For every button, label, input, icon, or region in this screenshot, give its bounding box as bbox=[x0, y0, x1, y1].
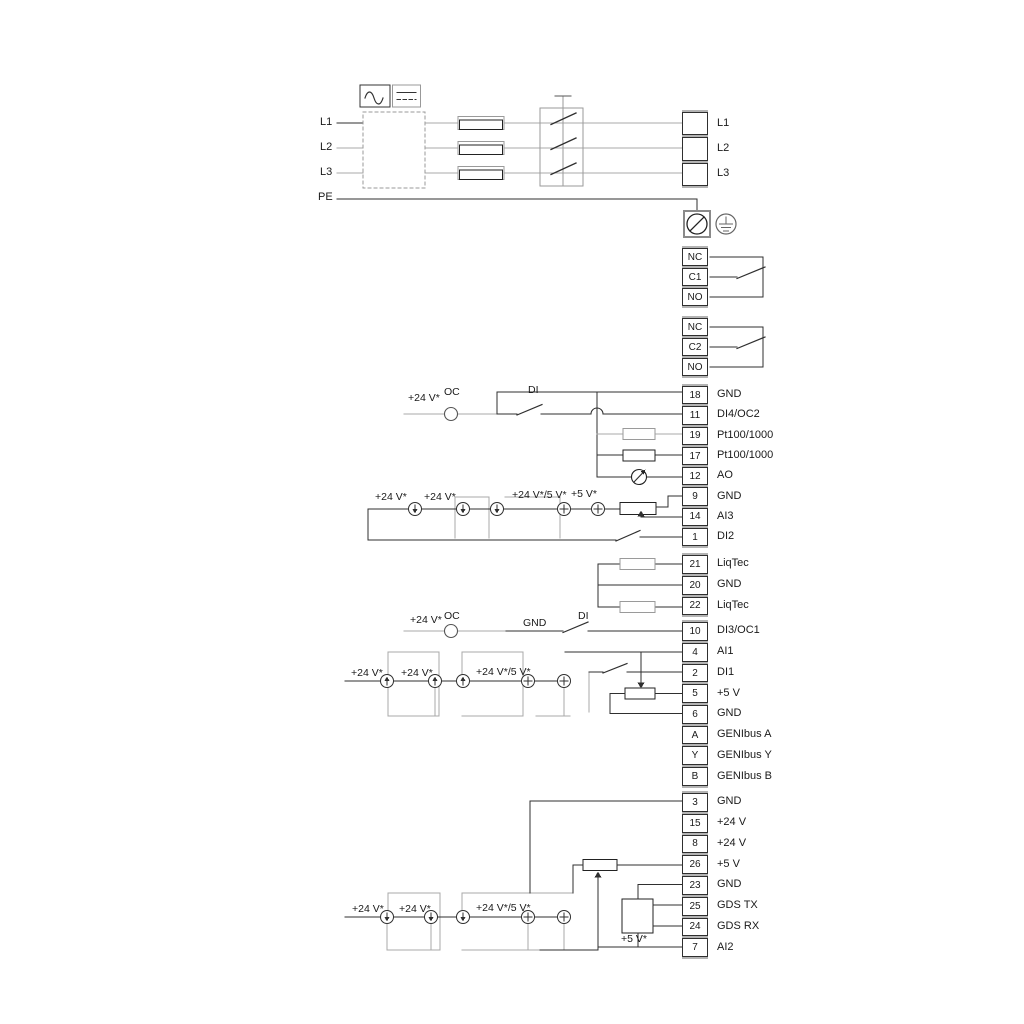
terminal-label-+5 V: +5 V bbox=[717, 687, 740, 699]
terminal-label-DI3/OC1: DI3/OC1 bbox=[717, 624, 760, 636]
terminal-label-DI1: DI1 bbox=[717, 666, 734, 678]
terminal-cell-22: 22 bbox=[682, 597, 708, 616]
earth-ground-icon bbox=[716, 214, 736, 234]
terminal-cell-C2: C2 bbox=[682, 338, 708, 356]
pe-terminal-icon bbox=[684, 211, 710, 237]
terminal-group-relay2: NCC2NO bbox=[682, 316, 708, 378]
terminal-cell-26: 26 bbox=[682, 855, 708, 874]
ac-symbol-icon bbox=[360, 85, 390, 107]
wiring-diagram: L1 L2 L3 PE +24 V* OC DI +24 V* +24 V* +… bbox=[0, 0, 1024, 1024]
mains-input-section bbox=[337, 85, 736, 237]
liqtec-sensor-icon bbox=[620, 559, 655, 570]
relay1-contact bbox=[710, 257, 765, 297]
terminal-cell-2: 2 bbox=[682, 664, 708, 683]
terminal-cell-15: 15 bbox=[682, 814, 708, 833]
relay2-contact bbox=[710, 327, 765, 367]
label-plus24v: +24 V* bbox=[401, 668, 433, 679]
label-gnd: GND bbox=[523, 618, 546, 629]
liqtec-circuit bbox=[598, 559, 684, 613]
terminal-cell-10: 10 bbox=[682, 622, 708, 641]
terminal-label-AO: AO bbox=[717, 469, 733, 481]
label-plus24v: +24 V* bbox=[424, 492, 456, 503]
terminal-group-io1: 18GND11DI4/OC219Pt100/100017Pt100/100012… bbox=[682, 384, 708, 548]
terminal-cell-Y: Y bbox=[682, 746, 708, 765]
terminal-label-GENIbus Y: GENIbus Y bbox=[717, 749, 772, 761]
terminal-group-liqtec: 21LiqTec20GND22LiqTec bbox=[682, 553, 708, 617]
label-plus5v: +5 V* bbox=[621, 934, 647, 945]
di1-switch-blade bbox=[603, 664, 627, 674]
gnd3-wire bbox=[530, 801, 684, 893]
terminal-cell-8: 8 bbox=[682, 835, 708, 854]
terminal-label-GND: GND bbox=[717, 795, 741, 807]
pt100-row-19 bbox=[597, 429, 684, 440]
terminal-cell-18: 18 bbox=[682, 386, 708, 404]
liqtec-sensor-icon bbox=[620, 602, 655, 613]
ai3-potentiometer bbox=[620, 496, 684, 517]
ai1-di1-circuit bbox=[345, 652, 684, 716]
fuse-l1 bbox=[458, 117, 504, 130]
pt100-sensor-icon bbox=[623, 429, 655, 440]
terminal-cell-NO: NO bbox=[682, 358, 708, 376]
terminal-cell-14: 14 bbox=[682, 508, 708, 526]
terminal-cell-17: 17 bbox=[682, 447, 708, 465]
wiring-svg bbox=[0, 0, 1024, 1024]
di-switch-blade bbox=[517, 405, 542, 416]
terminal-label-AI3: AI3 bbox=[717, 510, 734, 522]
terminal-cell-24: 24 bbox=[682, 918, 708, 937]
terminal-label-GDS RX: GDS RX bbox=[717, 920, 759, 932]
terminal-cell-NO: NO bbox=[682, 288, 708, 306]
pt100-row-17 bbox=[597, 450, 684, 461]
terminal-label-DI4/OC2: DI4/OC2 bbox=[717, 408, 760, 420]
label-plus24v: +24 V* bbox=[375, 492, 407, 503]
terminal-label-GND: GND bbox=[717, 490, 741, 502]
terminal-cell-L1 bbox=[682, 112, 708, 135]
terminal-label-GND: GND bbox=[717, 878, 741, 890]
terminal-cell-5: 5 bbox=[682, 684, 708, 703]
terminal-group-io2: 4AI12DI15+5 V6GNDAGENIbus AYGENIbus YBGE… bbox=[682, 641, 708, 788]
label-plus24v-5v: +24 V*/5 V* bbox=[512, 490, 567, 501]
label-l2-in: L2 bbox=[320, 141, 332, 153]
option-brackets bbox=[455, 497, 560, 538]
terminal-label-L1: L1 bbox=[717, 117, 729, 129]
terminal-label-GDS TX: GDS TX bbox=[717, 899, 758, 911]
label-di: DI bbox=[578, 611, 589, 622]
fuse-l2 bbox=[458, 142, 504, 155]
terminal-group-mains-out: L1L2L3 bbox=[682, 110, 708, 188]
terminal-label-LiqTec: LiqTec bbox=[717, 599, 749, 611]
fuse-l3 bbox=[458, 167, 504, 180]
terminal-label-GND: GND bbox=[717, 578, 741, 590]
terminal-label-+24 V: +24 V bbox=[717, 816, 746, 828]
label-plus24v-5v: +24 V*/5 V* bbox=[476, 667, 531, 678]
terminal-group-di3: 10DI3/OC1 bbox=[682, 620, 708, 643]
terminal-cell-20: 20 bbox=[682, 576, 708, 595]
terminal-cell-25: 25 bbox=[682, 897, 708, 916]
ai2-gds-circuit bbox=[345, 801, 684, 950]
dc-symbol-icon bbox=[393, 85, 421, 107]
terminal-label-L2: L2 bbox=[717, 142, 729, 154]
terminal-cell-23: 23 bbox=[682, 876, 708, 895]
label-l1-in: L1 bbox=[320, 116, 332, 128]
label-oc: OC bbox=[444, 611, 460, 622]
open-collector-icon bbox=[445, 625, 458, 638]
terminal-cell-4: 4 bbox=[682, 643, 708, 662]
di2-switch-blade bbox=[616, 531, 640, 542]
terminal-cell-1: 1 bbox=[682, 528, 708, 546]
terminal-label-+5 V: +5 V bbox=[717, 858, 740, 870]
open-collector-icon bbox=[445, 408, 458, 421]
filter-dashed-box bbox=[363, 112, 425, 188]
terminal-group-relay1: NCC1NO bbox=[682, 246, 708, 308]
terminal-label-AI2: AI2 bbox=[717, 941, 734, 953]
ai3-di2-circuit bbox=[368, 496, 684, 541]
terminal-label-GENIbus B: GENIbus B bbox=[717, 770, 772, 782]
di-switch-blade bbox=[563, 622, 588, 633]
terminal-label-+24 V: +24 V bbox=[717, 837, 746, 849]
label-di: DI bbox=[528, 385, 539, 396]
label-oc: OC bbox=[444, 387, 460, 398]
label-plus24v-5v: +24 V*/5 V* bbox=[476, 903, 531, 914]
terminal-label-Pt100/1000: Pt100/1000 bbox=[717, 429, 773, 441]
ao-row bbox=[597, 470, 684, 485]
terminal-label-GENIbus A: GENIbus A bbox=[717, 728, 771, 740]
terminal-cell-3: 3 bbox=[682, 793, 708, 812]
ai1-potentiometer bbox=[565, 652, 684, 714]
terminal-label-GND: GND bbox=[717, 388, 741, 400]
terminal-cell-NC: NC bbox=[682, 318, 708, 336]
terminal-group-io3: 3GND15+24 V8+24 V26+5 V23GND25GDS TX24GD… bbox=[682, 791, 708, 959]
terminal-cell-9: 9 bbox=[682, 487, 708, 505]
terminal-label-LiqTec: LiqTec bbox=[717, 557, 749, 569]
terminal-cell-L3 bbox=[682, 163, 708, 186]
terminal-label-Pt100/1000: Pt100/1000 bbox=[717, 449, 773, 461]
terminal-cell-7: 7 bbox=[682, 938, 708, 957]
terminal-label-DI2: DI2 bbox=[717, 530, 734, 542]
terminal-cell-19: 19 bbox=[682, 427, 708, 445]
label-plus5v: +5 V* bbox=[571, 489, 597, 500]
terminal-cell-12: 12 bbox=[682, 467, 708, 485]
label-plus24v: +24 V* bbox=[410, 615, 442, 626]
label-plus24v: +24 V* bbox=[352, 904, 384, 915]
label-plus24v: +24 V* bbox=[399, 904, 431, 915]
label-l3-in: L3 bbox=[320, 166, 332, 178]
label-plus24v: +24 V* bbox=[408, 393, 440, 404]
terminal-label-AI1: AI1 bbox=[717, 645, 734, 657]
label-plus24v: +24 V* bbox=[351, 668, 383, 679]
wiper-arrow bbox=[595, 872, 602, 878]
terminal-cell-NC: NC bbox=[682, 248, 708, 266]
pt100-sensor-icon bbox=[623, 450, 655, 461]
label-pe-in: PE bbox=[318, 191, 333, 203]
terminal-label-GND: GND bbox=[717, 707, 741, 719]
pe-wire bbox=[337, 199, 697, 211]
terminal-cell-C1: C1 bbox=[682, 268, 708, 286]
terminal-cell-B: B bbox=[682, 767, 708, 786]
terminal-cell-6: 6 bbox=[682, 705, 708, 724]
terminal-cell-L2 bbox=[682, 137, 708, 160]
terminal-cell-21: 21 bbox=[682, 555, 708, 574]
terminal-cell-A: A bbox=[682, 726, 708, 745]
terminal-cell-11: 11 bbox=[682, 406, 708, 424]
terminal-label-L3: L3 bbox=[717, 167, 729, 179]
